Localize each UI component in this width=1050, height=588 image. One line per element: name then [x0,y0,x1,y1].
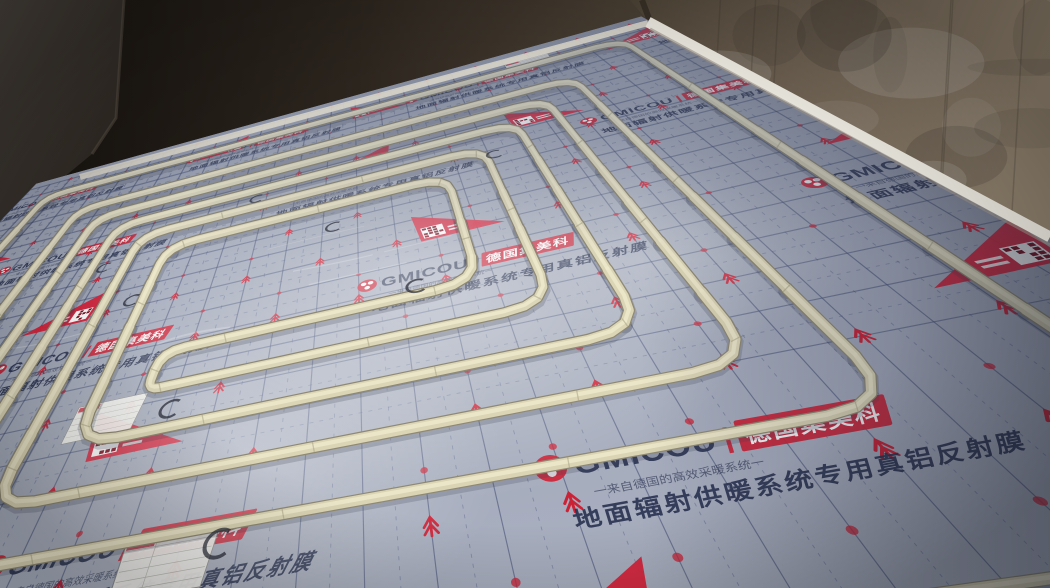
photo-viewport: GMICOU|德国集美科一来自德国的高效采暖系统一地面辐射供暖系统专用真铝反射膜… [0,0,1050,588]
underfloor-heating-photo: GMICOU|德国集美科一来自德国的高效采暖系统一地面辐射供暖系统专用真铝反射膜… [0,0,1050,588]
vignette [0,0,1050,588]
